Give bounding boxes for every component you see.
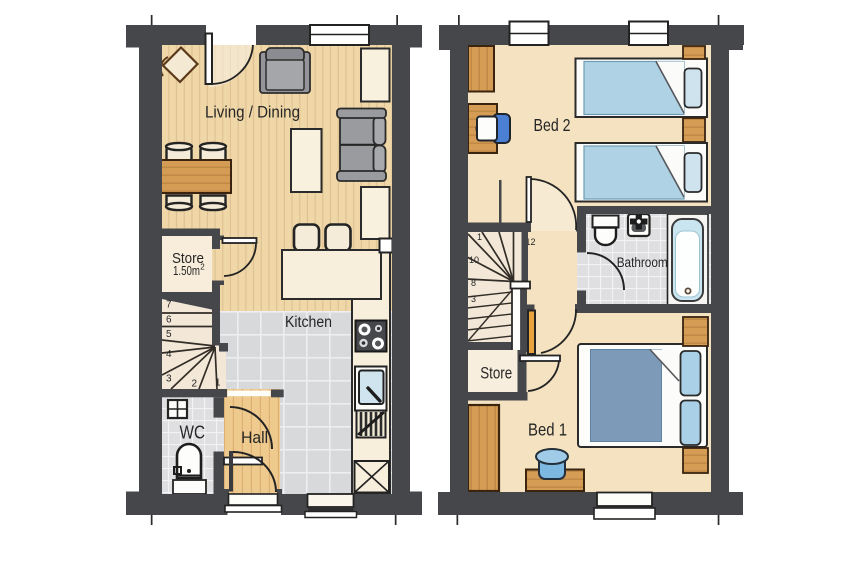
svg-text:5: 5 [166,329,172,340]
svg-text:8: 8 [471,278,476,288]
svg-text:6: 6 [166,315,172,326]
svg-text:4: 4 [166,349,172,360]
svg-text:Store: Store [480,364,512,383]
svg-text:Bathroom: Bathroom [617,255,668,270]
svg-text:Living / Dining: Living / Dining [205,103,300,122]
svg-text:10: 10 [469,255,479,265]
svg-text:2: 2 [200,263,205,272]
svg-text:1: 1 [215,378,221,389]
svg-text:Hall: Hall [241,429,268,447]
svg-text:3: 3 [166,374,172,385]
svg-text:2: 2 [192,379,198,390]
svg-text:WC: WC [180,423,206,443]
svg-text:3: 3 [471,294,476,304]
svg-text:Bed 2: Bed 2 [534,115,571,135]
svg-text:1.50m: 1.50m [173,264,200,278]
svg-text:1: 1 [477,232,482,242]
svg-text:Kitchen: Kitchen [285,314,332,331]
svg-text:Bed 1: Bed 1 [528,420,567,440]
svg-text:7: 7 [166,300,172,311]
